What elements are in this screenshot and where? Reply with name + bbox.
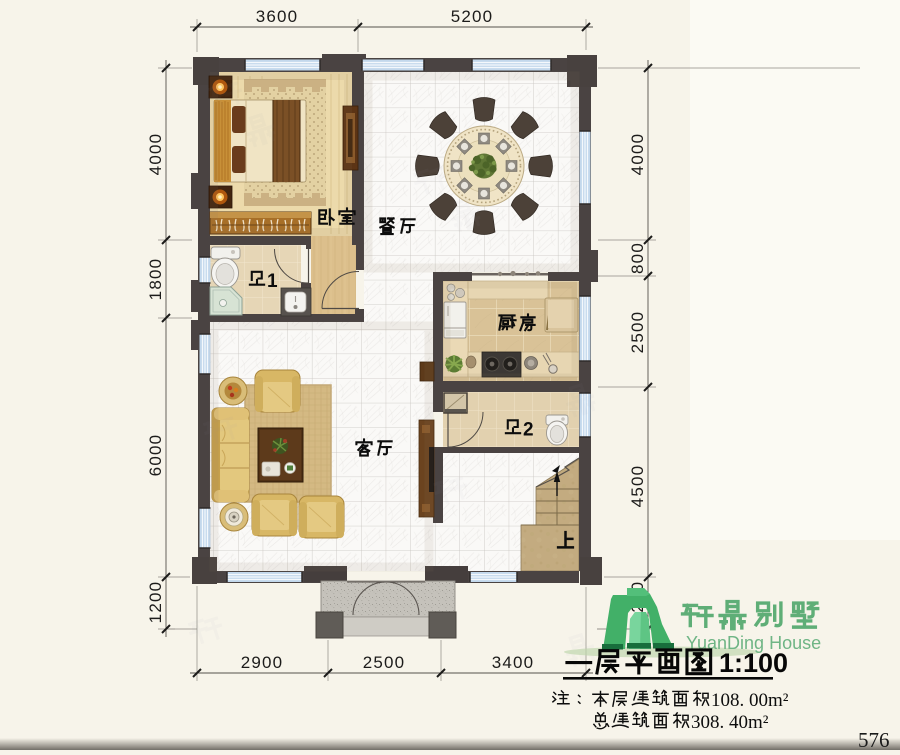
svg-text:2900: 2900 [241,653,284,672]
svg-text:2500: 2500 [628,311,647,354]
svg-text:3400: 3400 [492,653,535,672]
svg-text:308. 40m²: 308. 40m² [691,712,769,733]
svg-text:4500: 4500 [628,465,647,508]
svg-text:800: 800 [628,242,647,274]
svg-text:1: 1 [267,271,278,292]
svg-text:4000: 4000 [146,133,165,176]
svg-text:108. 00m²: 108. 00m² [711,690,789,711]
svg-text:5200: 5200 [451,7,494,26]
svg-text:1800: 1800 [146,258,165,301]
svg-text:2500: 2500 [363,653,406,672]
svg-text:1:100: 1:100 [719,648,788,678]
svg-text:6000: 6000 [146,434,165,477]
svg-text:2: 2 [523,420,534,441]
svg-text:1200: 1200 [146,581,165,624]
svg-text:3600: 3600 [256,7,299,26]
svg-text:4000: 4000 [628,133,647,176]
svg-text:576: 576 [858,728,890,750]
